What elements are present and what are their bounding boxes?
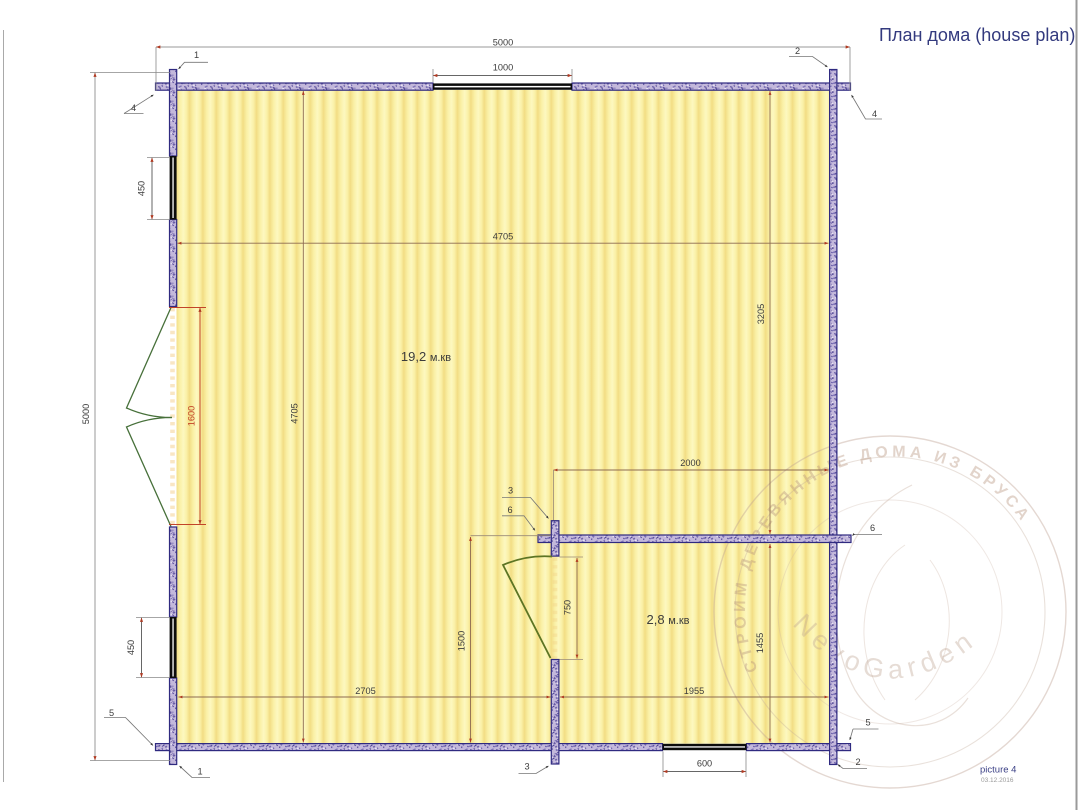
svg-text:4: 4 [872, 109, 877, 119]
svg-text:1: 1 [197, 767, 202, 777]
svg-text:3: 3 [508, 486, 513, 496]
svg-text:2705: 2705 [355, 686, 375, 696]
svg-text:19,2 м.кв: 19,2 м.кв [401, 349, 451, 364]
svg-text:2,8 м.кв: 2,8 м.кв [647, 612, 690, 627]
svg-text:2000: 2000 [680, 458, 700, 468]
svg-text:3205: 3205 [756, 304, 766, 324]
svg-text:6: 6 [870, 523, 875, 533]
svg-text:1000: 1000 [493, 63, 513, 73]
svg-text:450: 450 [137, 181, 147, 196]
svg-text:picture 4: picture 4 [980, 765, 1016, 776]
svg-text:750: 750 [563, 600, 573, 615]
svg-text:1600: 1600 [187, 406, 197, 426]
svg-text:2: 2 [855, 757, 860, 767]
svg-text:5000: 5000 [493, 37, 513, 47]
svg-text:450: 450 [126, 640, 136, 655]
svg-text:03.12.2016: 03.12.2016 [981, 777, 1014, 784]
svg-text:1455: 1455 [755, 633, 765, 653]
svg-text:4705: 4705 [493, 232, 513, 242]
svg-text:1955: 1955 [684, 686, 704, 696]
svg-text:600: 600 [697, 759, 712, 769]
svg-text:4: 4 [131, 103, 136, 113]
svg-text:5: 5 [865, 718, 870, 728]
svg-text:1: 1 [194, 50, 199, 60]
svg-text:4705: 4705 [290, 403, 300, 423]
svg-text:5: 5 [109, 708, 114, 718]
svg-text:План дома (house plan): План дома (house plan) [879, 25, 1075, 45]
svg-text:6: 6 [507, 505, 512, 515]
svg-text:1500: 1500 [457, 631, 467, 651]
svg-text:3: 3 [524, 762, 529, 772]
svg-text:2: 2 [795, 46, 800, 56]
svg-text:5000: 5000 [81, 404, 91, 424]
